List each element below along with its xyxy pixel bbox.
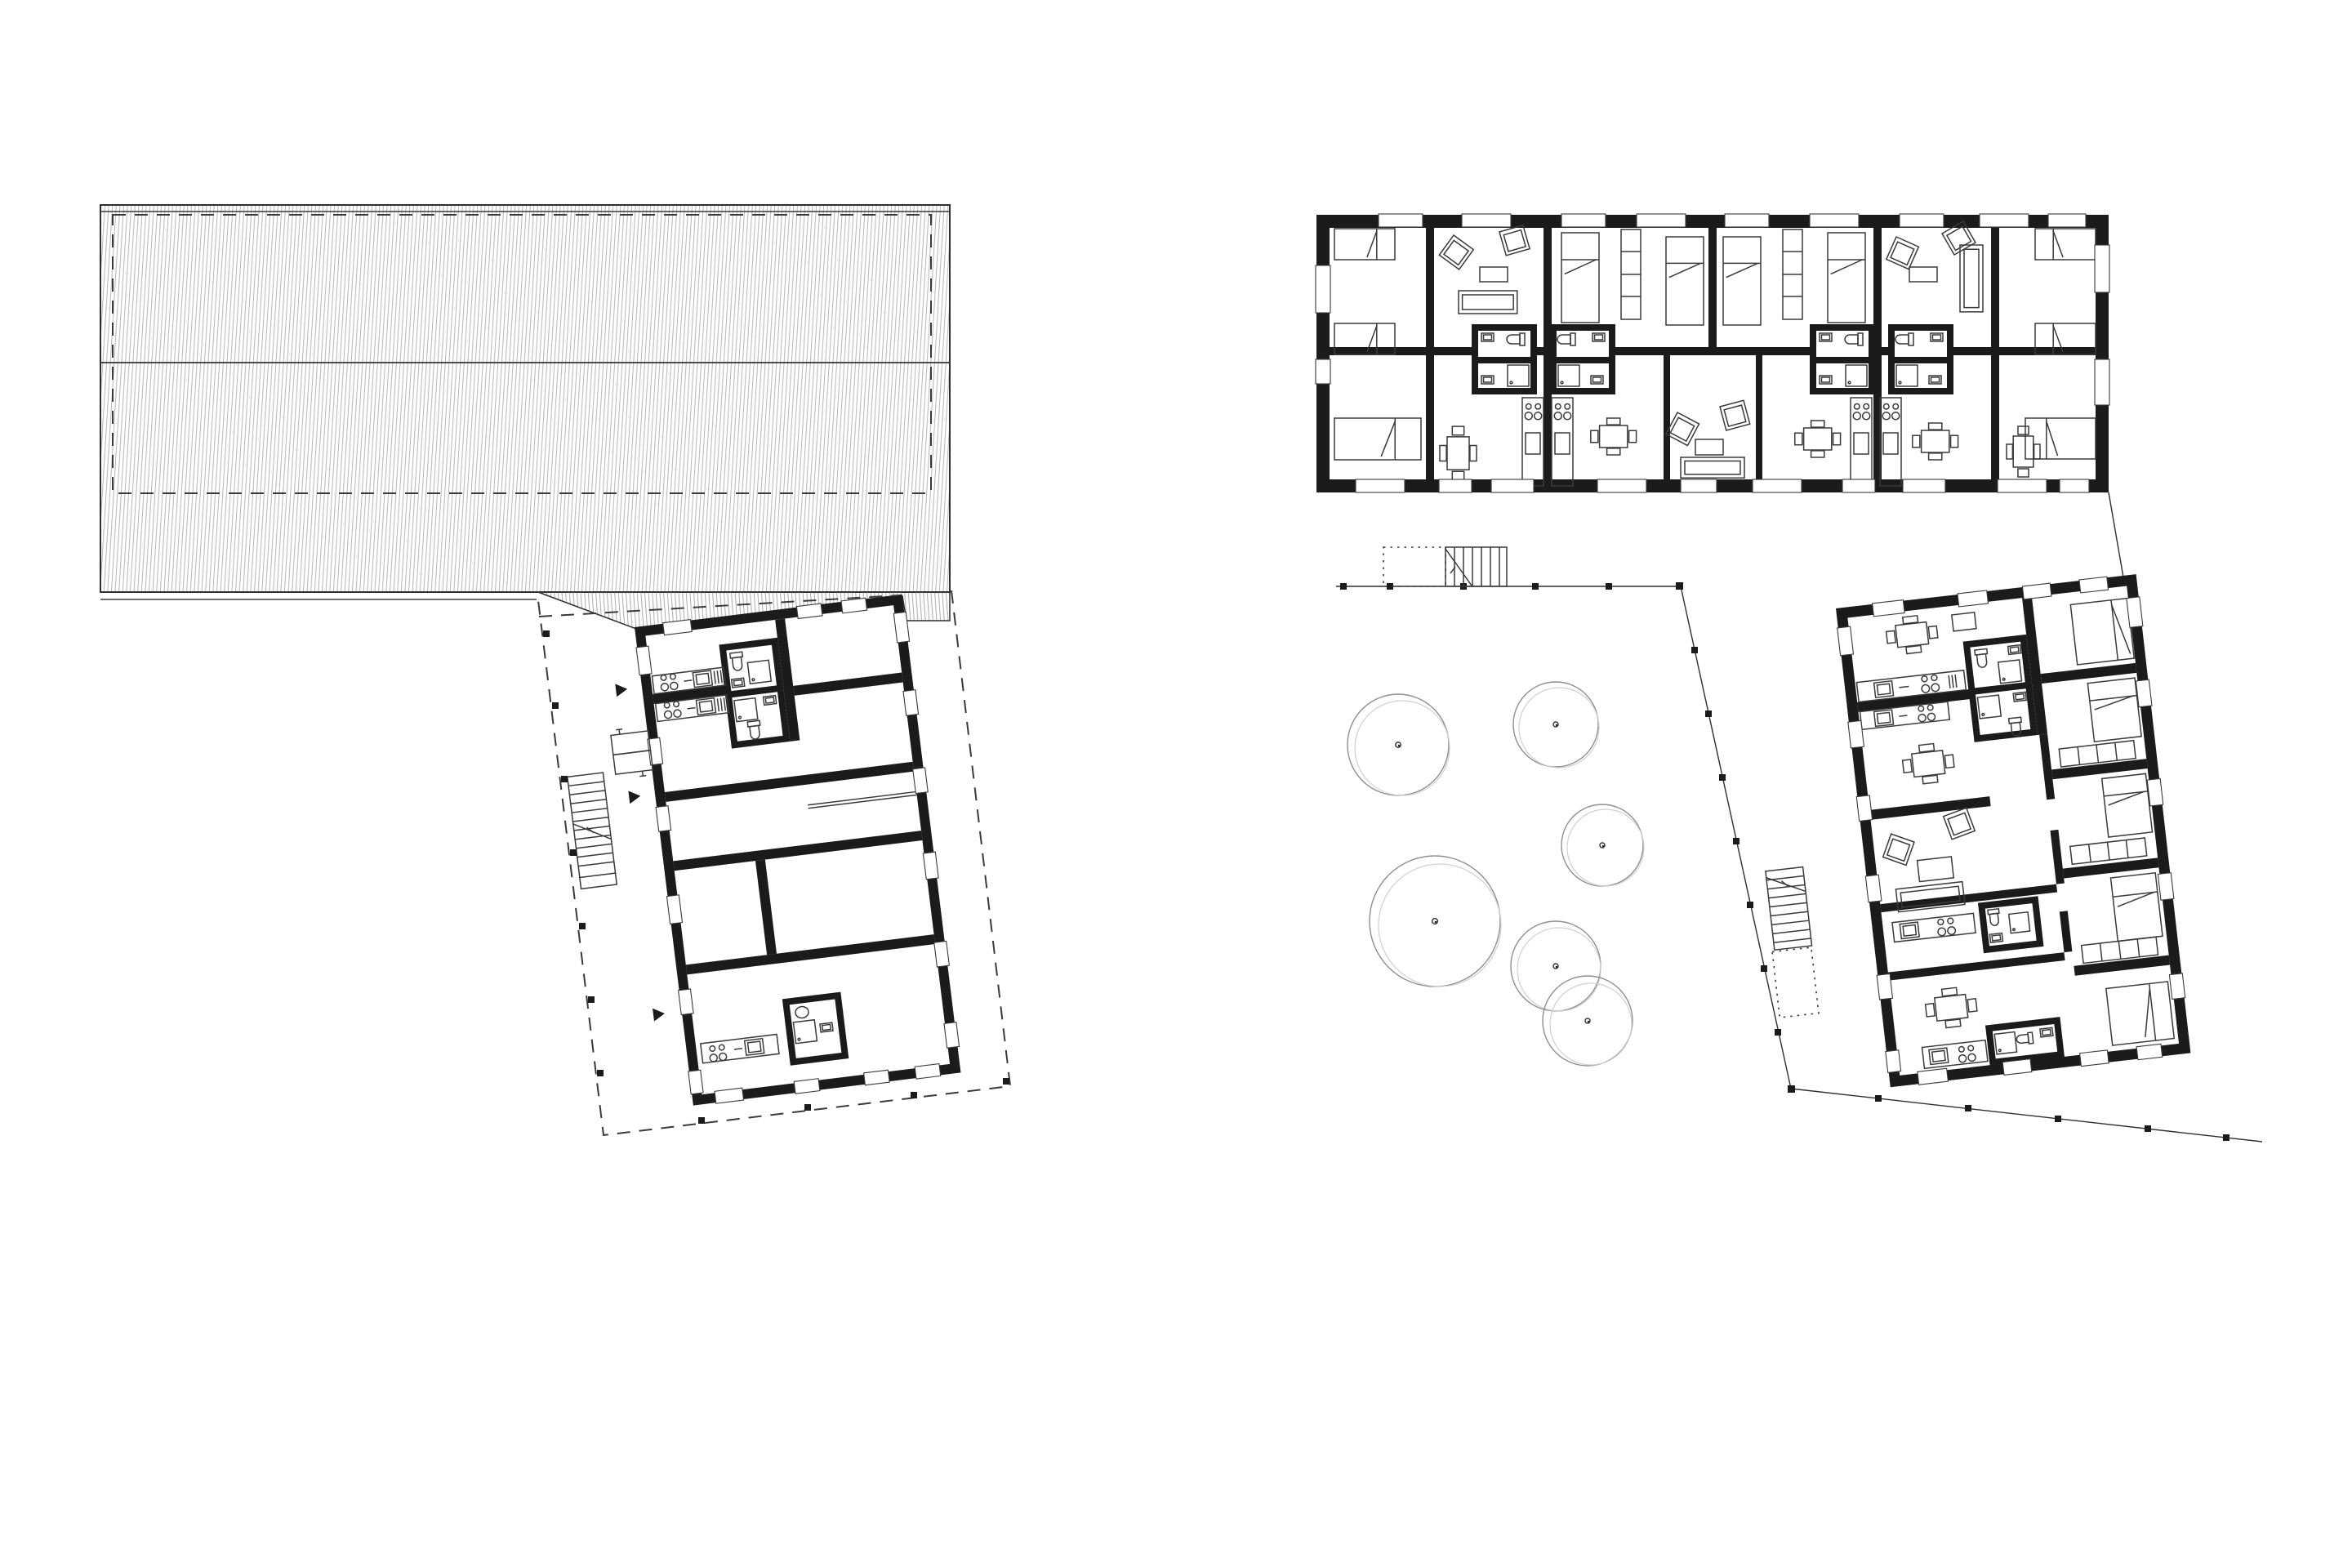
garden-bath-pod-top [1963,635,2038,742]
drawing-canvas [0,0,2352,1568]
garden-bath-pod-bottom [1985,1017,2065,1066]
bar-building [1316,214,2109,492]
garden-bath-pod-mid [1978,896,2044,953]
roof-plan [100,205,950,629]
bath-pod-bottom [782,992,849,1066]
plan-sheet [0,0,2352,1568]
roof-field [100,205,950,592]
